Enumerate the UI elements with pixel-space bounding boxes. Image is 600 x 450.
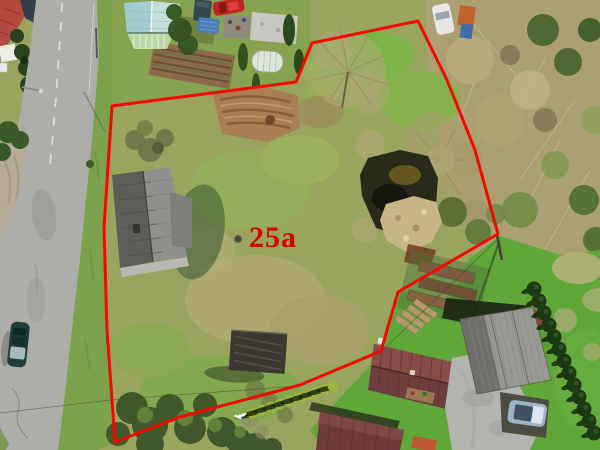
utility-pole xyxy=(96,28,97,58)
cypress-tree xyxy=(238,43,248,71)
well xyxy=(234,235,242,243)
plot-area-label: 25a xyxy=(249,221,297,254)
blue-tarp xyxy=(197,17,219,34)
aerial-photo: 25a xyxy=(0,0,600,450)
scene-canvas: 25a xyxy=(0,0,600,450)
greenhouse xyxy=(251,50,283,73)
chimney xyxy=(133,224,141,234)
street-lamp-head xyxy=(39,89,43,93)
